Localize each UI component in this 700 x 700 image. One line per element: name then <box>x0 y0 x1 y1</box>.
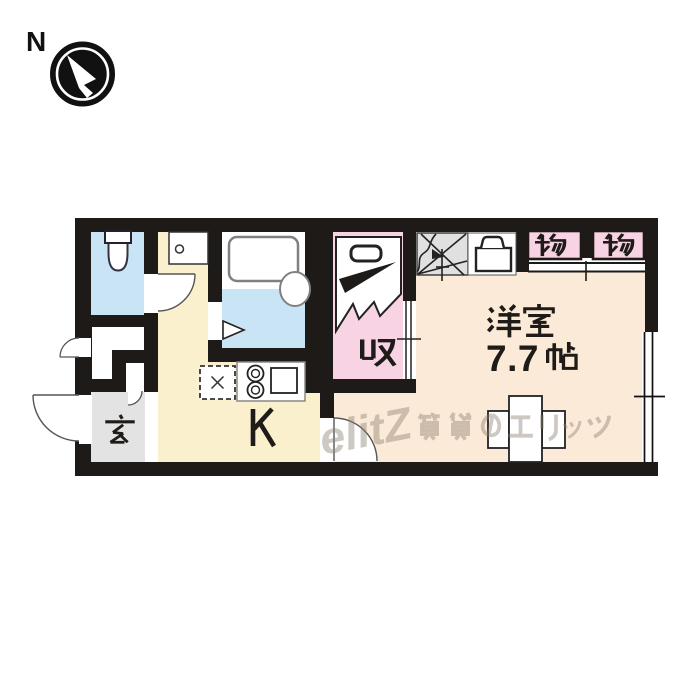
svg-text:7.7: 7.7 <box>486 338 539 379</box>
svg-text:N: N <box>26 26 46 57</box>
